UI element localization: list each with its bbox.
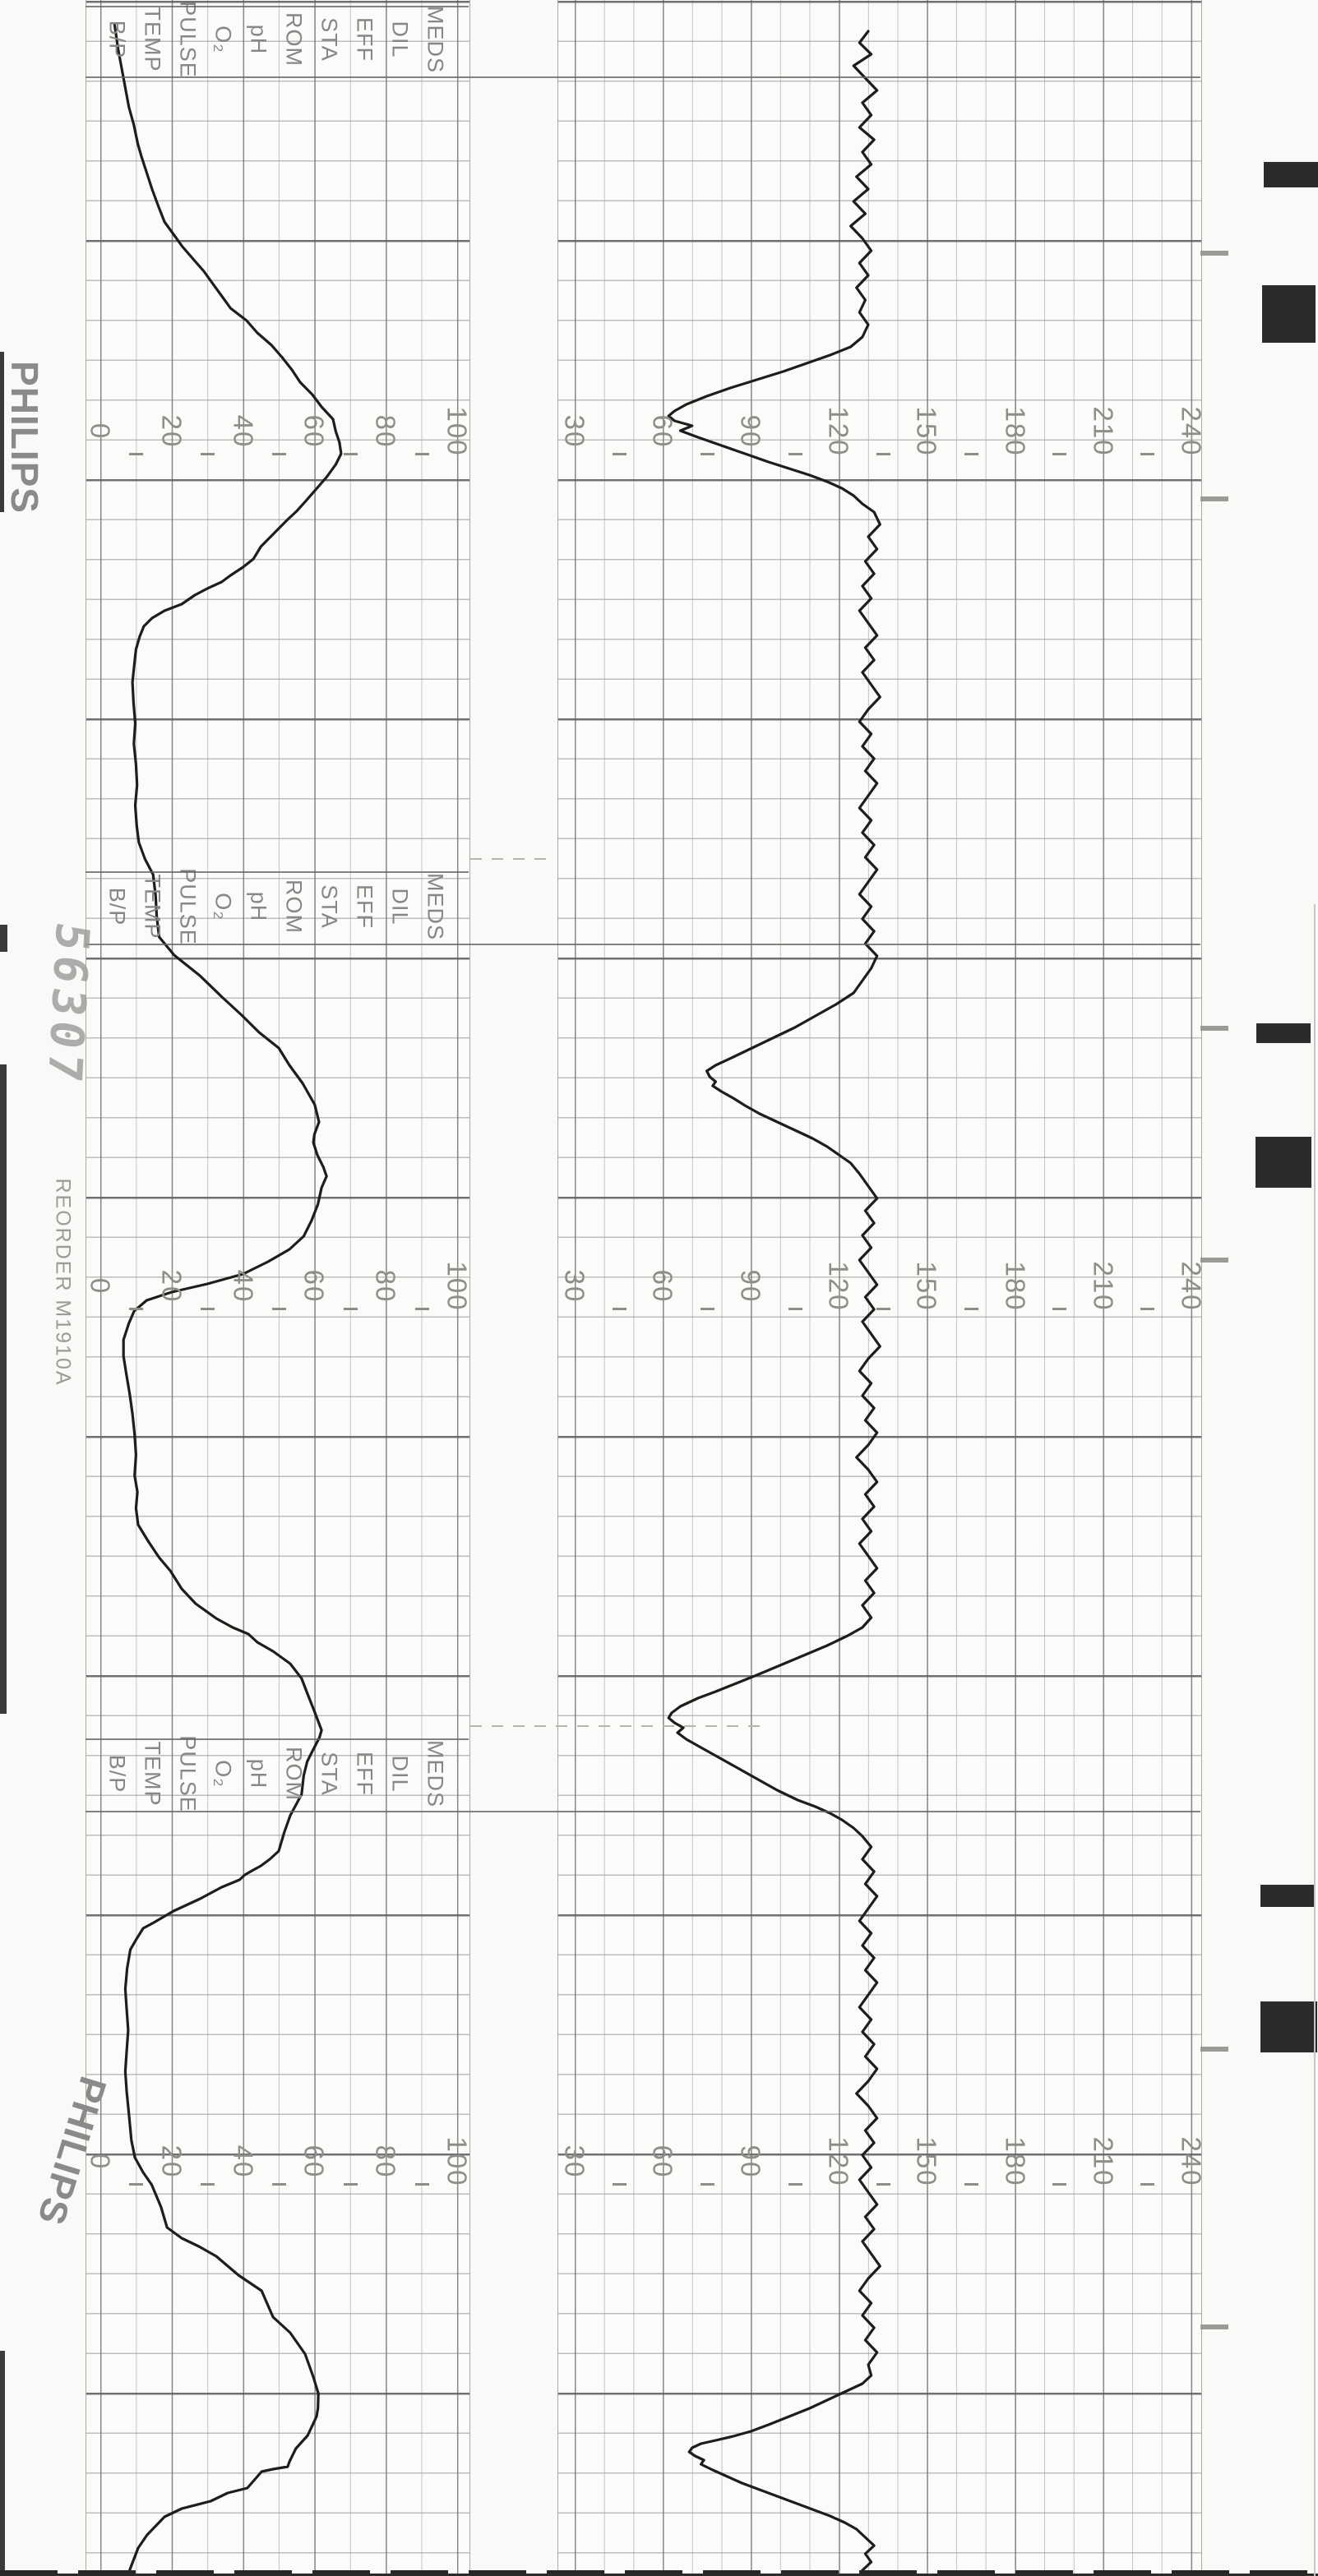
axis-number: 240 xyxy=(1177,2136,1205,2186)
axis-tick xyxy=(1052,2183,1066,2186)
axis-tick xyxy=(964,2183,978,2186)
axis-number: 100 xyxy=(444,1261,471,1311)
axis-tick xyxy=(701,2183,714,2186)
channel-label-bp: B/P xyxy=(106,888,128,926)
channel-label-temp: TEMP xyxy=(141,1741,164,1806)
axis-tick xyxy=(788,2183,802,2186)
margin-tick xyxy=(1200,2324,1228,2329)
registration-mark xyxy=(1260,2001,1317,2052)
axis-number: 210 xyxy=(1089,2136,1117,2186)
axis-tick xyxy=(201,453,215,455)
channel-label-bp: B/P xyxy=(106,1755,128,1794)
label-band-border xyxy=(86,944,1200,945)
axis-number: 20 xyxy=(158,1270,185,1304)
axis-tick xyxy=(344,453,358,455)
margin-tick xyxy=(1200,1026,1228,1031)
axis-number: 60 xyxy=(650,2145,677,2179)
axis-tick xyxy=(201,1308,215,1310)
axis-tick xyxy=(876,453,890,455)
scan-left-edge xyxy=(0,1064,7,1714)
axis-tick xyxy=(129,2183,143,2186)
axis-number: 20 xyxy=(158,415,185,449)
label-band-border xyxy=(86,6,469,7)
channel-label-ph: pH xyxy=(247,1759,270,1789)
axis-number: 60 xyxy=(650,1270,677,1304)
axis-number: 150 xyxy=(913,2136,941,2186)
channel-label-ph: pH xyxy=(247,25,270,55)
channel-label-temp: TEMP xyxy=(141,7,164,72)
axis-tick xyxy=(613,2183,627,2186)
axis-number: 100 xyxy=(444,406,471,456)
channel-label-pulse: PULSE xyxy=(177,1,199,78)
axis-tick xyxy=(964,453,978,455)
channel-label-dil: DIL xyxy=(389,21,411,58)
margin-tick xyxy=(1200,2047,1228,2052)
axis-tick xyxy=(129,1308,143,1310)
axis-number: 120 xyxy=(825,1261,853,1311)
channel-label-dil: DIL xyxy=(389,888,411,925)
channel-label-ph: pH xyxy=(247,892,270,922)
axis-number: 90 xyxy=(738,415,765,449)
margin-tick xyxy=(1200,251,1228,256)
label-band-border xyxy=(86,76,1200,78)
registration-mark xyxy=(1256,1137,1311,1188)
channel-label-meds: MEDS xyxy=(424,1740,446,1807)
label-band-border xyxy=(86,1738,469,1740)
channel-label-pulse: PULSE xyxy=(177,868,199,945)
axis-number: 60 xyxy=(301,1270,328,1304)
channel-label-rom: ROM xyxy=(283,1747,305,1801)
axis-number: 60 xyxy=(301,415,328,449)
axis-tick xyxy=(344,2183,358,2186)
gutter-dashed-line xyxy=(470,858,553,860)
registration-mark xyxy=(1262,285,1316,343)
axis-tick xyxy=(129,453,143,455)
axis-tick xyxy=(613,1308,627,1310)
axis-tick xyxy=(613,453,627,455)
axis-tick xyxy=(1140,453,1154,455)
channel-label-temp: TEMP xyxy=(141,874,164,939)
channel-label-pulse: PULSE xyxy=(177,1735,199,1812)
scan-left-edge xyxy=(0,2351,5,2576)
channel-label-eff: EFF xyxy=(354,1752,376,1796)
channel-label-rom: ROM xyxy=(283,12,305,67)
channel-label-o: O₂ xyxy=(212,25,234,53)
reorder-number: REORDER M1910A xyxy=(53,1178,73,1386)
registration-mark xyxy=(1260,1885,1316,1907)
axis-tick xyxy=(272,1308,286,1310)
axis-number: 90 xyxy=(738,1270,765,1304)
channel-label-o: O₂ xyxy=(212,893,234,920)
axis-number: 180 xyxy=(1001,2136,1029,2186)
axis-number: 40 xyxy=(229,415,257,449)
axis-number: 120 xyxy=(825,406,853,456)
axis-tick xyxy=(1140,2183,1154,2186)
axis-number: 30 xyxy=(562,415,589,449)
axis-tick xyxy=(1052,1308,1066,1310)
axis-number: 100 xyxy=(444,2136,471,2186)
channel-label-sta: STA xyxy=(318,17,340,62)
registration-mark xyxy=(1264,162,1318,187)
axis-tick xyxy=(1052,453,1066,455)
label-band-border xyxy=(86,1811,1200,1812)
axis-tick xyxy=(876,1308,890,1310)
axis-number: 180 xyxy=(1001,1261,1029,1311)
axis-tick xyxy=(701,453,714,455)
channel-label-sta: STA xyxy=(318,1752,340,1796)
axis-number: 150 xyxy=(913,1261,941,1311)
axis-number: 60 xyxy=(650,415,677,449)
registration-mark xyxy=(1256,1023,1311,1043)
channel-label-meds: MEDS xyxy=(424,6,446,73)
channel-label-o: O₂ xyxy=(212,1760,234,1787)
axis-tick xyxy=(876,2183,890,2186)
axis-tick xyxy=(272,2183,286,2186)
channel-label-meds: MEDS xyxy=(424,873,446,940)
axis-number: 30 xyxy=(562,2145,589,2179)
scan-right-edge xyxy=(1314,904,1316,2576)
axis-number: 210 xyxy=(1089,406,1117,456)
axis-tick xyxy=(788,1308,802,1310)
axis-tick xyxy=(415,1308,429,1310)
axis-number: 150 xyxy=(913,406,941,456)
axis-number: 60 xyxy=(301,2145,328,2179)
axis-number: 40 xyxy=(229,1270,257,1304)
axis-tick xyxy=(201,2183,215,2186)
axis-tick xyxy=(964,1308,978,1310)
axis-number: 80 xyxy=(372,2145,400,2179)
label-band-border xyxy=(86,871,469,873)
axis-number: 120 xyxy=(825,2136,853,2186)
channel-label-sta: STA xyxy=(318,884,340,929)
philips-logo: PHILIPS xyxy=(6,361,44,514)
channel-label-bp: B/P xyxy=(106,21,128,59)
stamp-number: 56307 xyxy=(40,919,95,1089)
axis-number: 240 xyxy=(1177,1261,1205,1311)
axis-tick xyxy=(1140,1308,1154,1310)
channel-label-rom: ROM xyxy=(283,879,305,934)
axis-number: 40 xyxy=(229,2145,257,2179)
axis-tick xyxy=(272,453,286,455)
axis-number: 20 xyxy=(158,2145,185,2179)
axis-tick xyxy=(415,453,429,455)
axis-number: 0 xyxy=(87,423,114,440)
axis-number: 0 xyxy=(87,1278,114,1295)
channel-label-eff: EFF xyxy=(354,884,376,929)
axis-number: 240 xyxy=(1177,406,1205,456)
axis-number: 90 xyxy=(738,2145,765,2179)
ctg-strip-scan: MEDSDILEFFSTAROMpHO₂PULSETEMPB/PMEDSDILE… xyxy=(0,0,1318,2576)
channel-label-eff: EFF xyxy=(354,17,376,62)
axis-number: 30 xyxy=(562,1270,589,1304)
axis-number: 210 xyxy=(1089,1261,1117,1311)
axis-number: 80 xyxy=(372,1270,400,1304)
axis-number: 180 xyxy=(1001,406,1029,456)
axis-tick xyxy=(344,1308,358,1310)
channel-label-dil: DIL xyxy=(389,1755,411,1792)
margin-tick xyxy=(1200,1258,1228,1263)
axis-tick xyxy=(415,2183,429,2186)
margin-tick xyxy=(1200,496,1228,501)
scan-left-edge xyxy=(0,925,7,952)
axis-tick xyxy=(788,453,802,455)
axis-tick xyxy=(701,1308,714,1310)
axis-number: 80 xyxy=(372,415,400,449)
gutter-dashed-line xyxy=(470,1725,766,1727)
